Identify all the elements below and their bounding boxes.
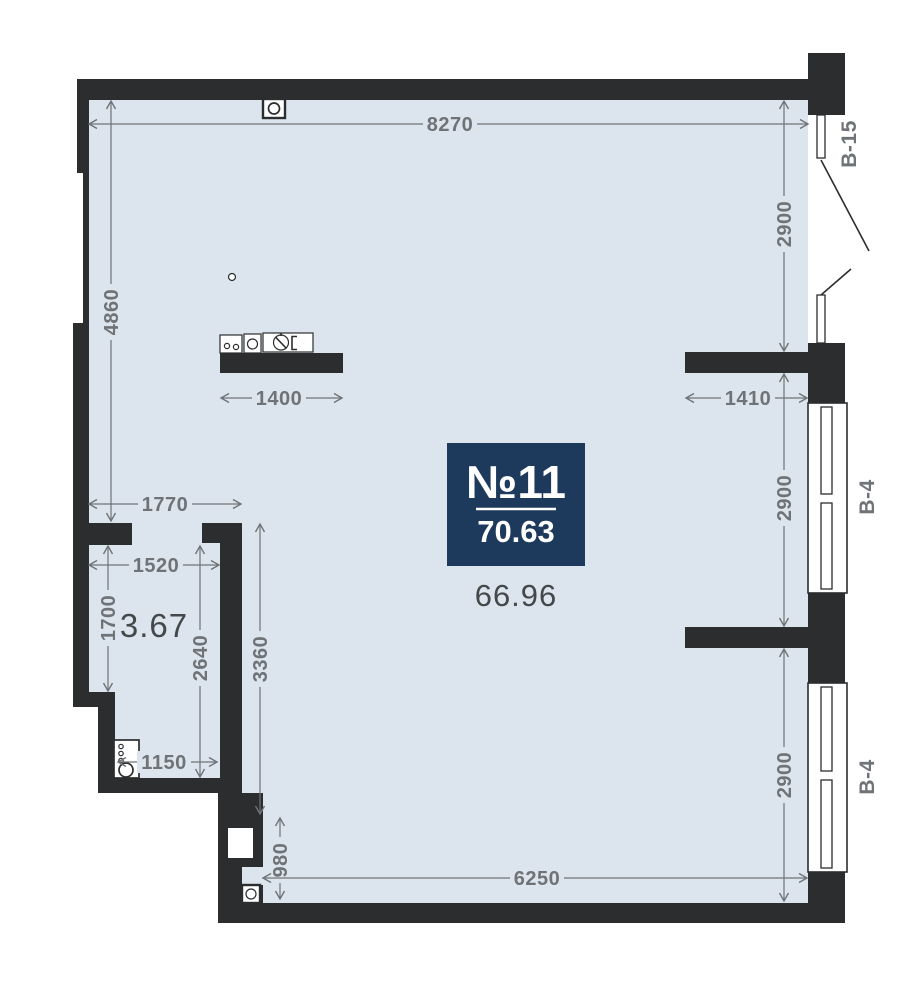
dim-hall-width: 1770 [142, 494, 189, 516]
unit-total-area: 70.63 [477, 514, 555, 549]
kitchen-counter [220, 353, 343, 373]
wall-niche [228, 828, 253, 858]
dim-kitchen-counter-width: 1400 [256, 388, 303, 410]
dim-right-pier-width: 1410 [725, 388, 772, 410]
dim-right-middle-height: 2900 [774, 475, 796, 522]
dim-lower-left-height: 3360 [250, 636, 272, 683]
dim-top-width: 8270 [427, 114, 474, 136]
dim-bathroom-left-height: 1700 [98, 595, 120, 642]
window-lower-label: В-4 [856, 759, 879, 794]
floor-alcove [242, 867, 263, 885]
balcony-door-label: В-15 [838, 120, 861, 168]
wall-stub-upper [685, 352, 808, 373]
dim-bathroom-inner-height: 2640 [190, 635, 212, 682]
dim-left-height: 4860 [101, 289, 123, 336]
vent-shaft-bottom-icon [242, 885, 260, 903]
bathroom-fixture-icon [114, 740, 139, 778]
vent-shaft-top-icon [263, 99, 285, 118]
dim-bottom-width: 6250 [514, 868, 561, 890]
wall-stub-lower [685, 627, 808, 648]
window-lower [808, 683, 847, 872]
dim-right-top-height: 2900 [774, 201, 796, 248]
floor-point-icon [229, 274, 236, 281]
unit-number: №11 [466, 456, 566, 508]
bathroom-area: 3.67 [120, 607, 188, 644]
window-upper-label: В-4 [856, 479, 879, 514]
unit-badge: №11 70.63 [447, 443, 585, 566]
stove-icon [220, 335, 242, 353]
kitchen-fixtures [220, 333, 313, 353]
dim-bathroom-width: 1520 [133, 555, 180, 577]
floor-plan: 8270 2900 4860 1400 1410 2900 2900 1770 [0, 0, 915, 982]
dim-right-bottom-height: 2900 [774, 752, 796, 799]
window-upper [808, 403, 847, 593]
living-room-area: 66.96 [475, 578, 558, 613]
dim-bathroom-bottom-width: 1150 [141, 752, 186, 774]
dim-bottom-step-height: 980 [270, 843, 292, 878]
